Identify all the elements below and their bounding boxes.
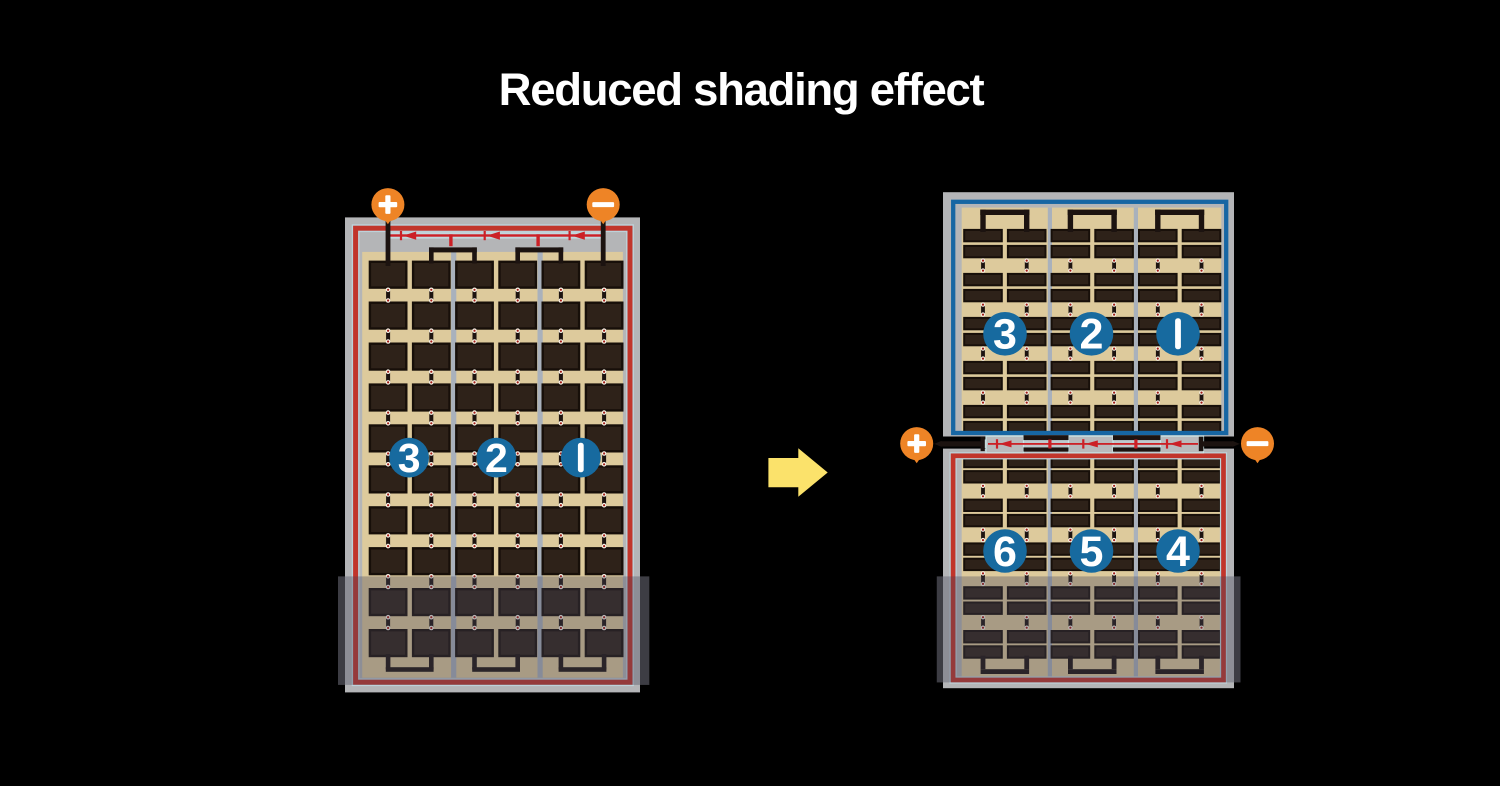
svg-text:5: 5	[1080, 528, 1104, 576]
svg-text:4: 4	[1166, 528, 1190, 576]
svg-text:2: 2	[1080, 311, 1104, 359]
svg-text:3: 3	[398, 435, 421, 481]
svg-text:2: 2	[485, 435, 508, 481]
svg-text:Reduced shading effect: Reduced shading effect	[499, 64, 985, 115]
svg-text:6: 6	[993, 528, 1017, 576]
svg-text:3: 3	[993, 311, 1017, 359]
